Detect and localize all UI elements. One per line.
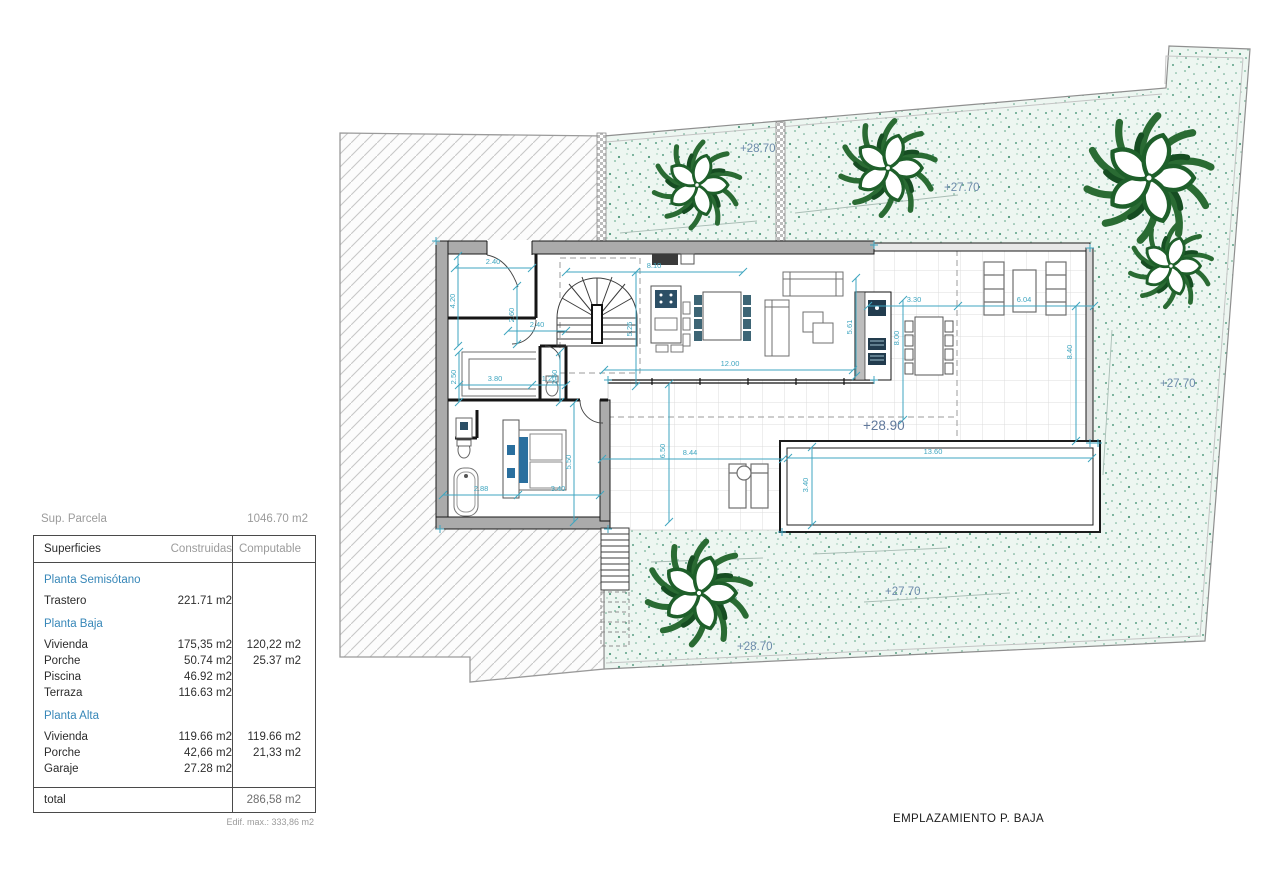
table-column-divider bbox=[232, 536, 233, 812]
table-row: Vivienda 119.66 m2 119.66 m2 bbox=[34, 729, 315, 745]
row-name: Trastero bbox=[34, 595, 148, 607]
dimension-label: 3.40 bbox=[801, 478, 810, 493]
dimension-label: 3.40 bbox=[551, 484, 566, 493]
dimension-label: 2.88 bbox=[474, 484, 489, 493]
row-built: 221.71 m2 bbox=[148, 595, 232, 607]
row-built: 46.92 m2 bbox=[148, 671, 232, 683]
row-name: Garaje bbox=[34, 763, 148, 775]
row-name: Vivienda bbox=[34, 731, 148, 743]
section-title: Planta Semisótano bbox=[34, 565, 315, 593]
parcel-area-row: Sup. Parcela 1046.70 m2 bbox=[33, 511, 316, 535]
outdoor-kitchen bbox=[855, 292, 891, 380]
elevation-label: +27.70 bbox=[885, 586, 921, 598]
row-built: 42,66 m2 bbox=[148, 747, 232, 759]
row-built: 27.28 m2 bbox=[148, 763, 232, 775]
dimension-label: 2.40 bbox=[486, 257, 501, 266]
dimension-label: 6.50 bbox=[658, 444, 667, 459]
table-row: Garaje 27.28 m2 bbox=[34, 761, 315, 777]
drawing-title: EMPLAZAMIENTO P. BAJA bbox=[893, 813, 1044, 825]
table-row: Terraza 116.63 m2 bbox=[34, 685, 315, 701]
table-header-row: Superficies Construidas Computable bbox=[34, 536, 315, 563]
dimension-label: 3.80 bbox=[488, 374, 503, 383]
table-row: Piscina 46.92 m2 bbox=[34, 669, 315, 685]
parcel-value: 1046.70 m2 bbox=[247, 513, 308, 525]
row-built: 175,35 m2 bbox=[148, 639, 232, 651]
total-label: total bbox=[34, 794, 148, 806]
dimension-label: 13.60 bbox=[924, 447, 943, 456]
header-superficies: Superficies bbox=[34, 543, 148, 555]
row-built: 116.63 m2 bbox=[148, 687, 232, 699]
dimension-label: 8.10 bbox=[647, 261, 662, 270]
header-computable: Computable bbox=[232, 543, 315, 555]
row-computable: 120,22 m2 bbox=[232, 639, 315, 651]
site-plan-sheet: 2.40 4.20 2.60 2.40 8.10 5.26 12.00 2.50… bbox=[0, 0, 1271, 892]
section-title: Planta Baja bbox=[34, 609, 315, 637]
header-construidas: Construidas bbox=[148, 543, 232, 555]
dimension-label: 8.40 bbox=[1065, 345, 1074, 360]
dimension-label: 8.00 bbox=[892, 331, 901, 346]
table-body: Planta Semisótano Trastero 221.71 m2 Pla… bbox=[34, 563, 315, 787]
row-name: Vivienda bbox=[34, 639, 148, 651]
total-value: 286,58 m2 bbox=[232, 794, 315, 806]
dimension-label: 2.50 bbox=[449, 370, 458, 385]
dimension-label: 6.04 bbox=[1017, 295, 1032, 304]
table-row: Porche 50.74 m2 25.37 m2 bbox=[34, 653, 315, 669]
surfaces-table: Superficies Construidas Computable Plant… bbox=[33, 535, 316, 813]
row-name: Porche bbox=[34, 655, 148, 667]
parcel-label: Sup. Parcela bbox=[41, 513, 107, 525]
row-computable: 119.66 m2 bbox=[232, 731, 315, 743]
dimension-label: 3.30 bbox=[907, 295, 922, 304]
table-row: Trastero 221.71 m2 bbox=[34, 593, 315, 609]
table-row: Vivienda 175,35 m2 120,22 m2 bbox=[34, 637, 315, 653]
dimension-label: 8.44 bbox=[683, 448, 698, 457]
row-name: Terraza bbox=[34, 687, 148, 699]
elevation-label: +27.70 bbox=[944, 182, 980, 194]
dimension-label: 4.20 bbox=[448, 294, 457, 309]
row-built: 50.74 m2 bbox=[148, 655, 232, 667]
row-name: Piscina bbox=[34, 671, 148, 683]
surface-summary-panel: Sup. Parcela 1046.70 m2 Superficies Cons… bbox=[33, 511, 316, 827]
row-built: 119.66 m2 bbox=[148, 731, 232, 743]
elevation-label: +28.70 bbox=[737, 641, 773, 653]
elevation-label: +27.70 bbox=[1160, 378, 1196, 390]
row-name: Porche bbox=[34, 747, 148, 759]
section-title: Planta Alta bbox=[34, 701, 315, 729]
dimension-label: 2.40 bbox=[530, 320, 545, 329]
dimension-label: 12.00 bbox=[721, 359, 740, 368]
dimension-label: 5.50 bbox=[564, 455, 573, 470]
elevation-label: +28.70 bbox=[740, 143, 776, 155]
table-row: Porche 42,66 m2 21,33 m2 bbox=[34, 745, 315, 761]
table-total-row: total 286,58 m2 bbox=[34, 787, 315, 812]
dimension-label: 5.61 bbox=[845, 320, 854, 335]
dimension-label: 2.60 bbox=[507, 308, 516, 323]
outdoor-lounge bbox=[984, 262, 1066, 315]
elevation-label: +28.90 bbox=[863, 418, 905, 433]
dimension-label: 2.50 bbox=[550, 370, 559, 385]
row-computable: 21,33 m2 bbox=[232, 747, 315, 759]
dimension-label: 5.26 bbox=[625, 322, 634, 337]
row-computable: 25.37 m2 bbox=[232, 655, 315, 667]
max-buildable-note: Edif. max.: 333,86 m2 bbox=[33, 813, 316, 827]
